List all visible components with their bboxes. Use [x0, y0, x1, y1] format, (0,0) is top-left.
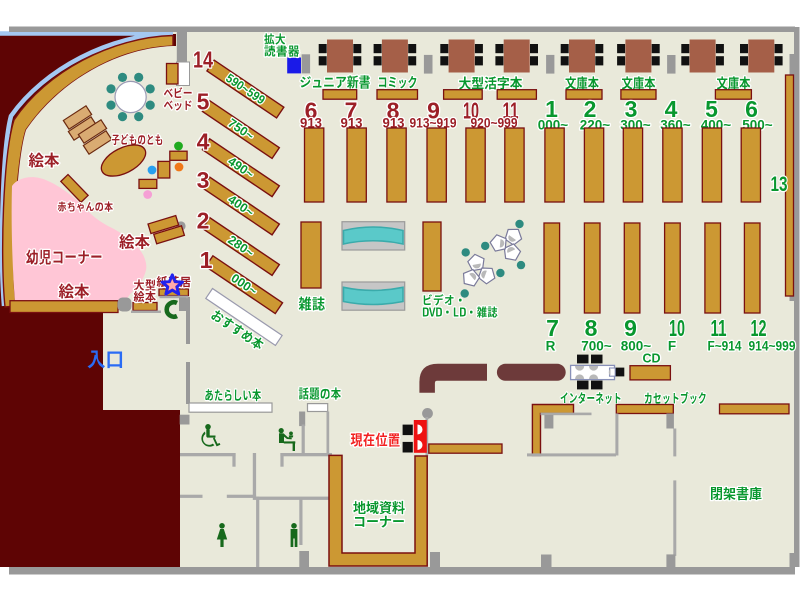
svg-text:7: 7	[546, 315, 559, 341]
svg-text:4: 4	[197, 129, 210, 155]
svg-text:14: 14	[193, 47, 213, 73]
svg-text:F~914: F~914	[708, 339, 742, 354]
svg-text:1: 1	[200, 247, 213, 273]
svg-text:10: 10	[669, 315, 685, 341]
svg-text:11: 11	[711, 315, 727, 341]
svg-text:12: 12	[751, 315, 767, 341]
svg-text:700~: 700~	[581, 339, 612, 354]
svg-text:13: 13	[771, 173, 788, 196]
svg-text:5: 5	[197, 89, 210, 115]
svg-text:CD: CD	[642, 352, 660, 366]
svg-text:9: 9	[624, 315, 637, 341]
svg-text:F: F	[668, 339, 676, 354]
svg-text:R: R	[546, 339, 556, 354]
svg-text:8: 8	[585, 315, 598, 341]
svg-text:2: 2	[197, 208, 210, 234]
svg-text:3: 3	[197, 167, 210, 193]
svg-text:914~999: 914~999	[749, 339, 796, 354]
